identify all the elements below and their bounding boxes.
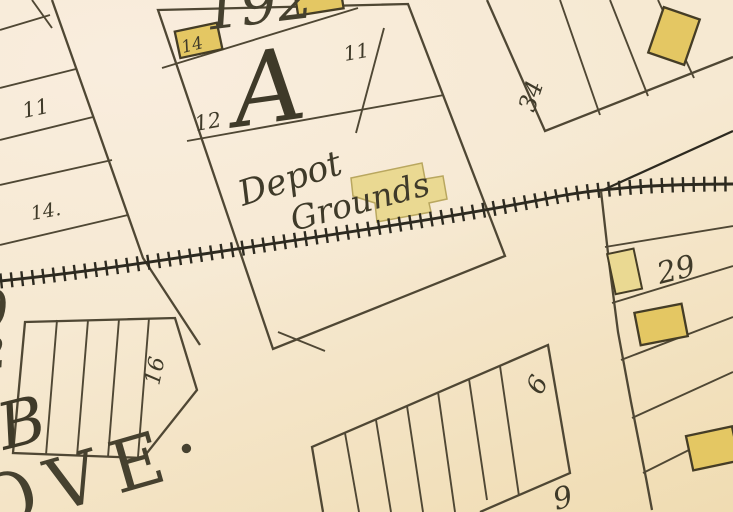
lot-number: 12 <box>193 108 223 136</box>
block-outline <box>312 345 570 512</box>
plat-map-drawing: 11 14. 192 14 12 11 A Depot Grounds <box>0 0 733 512</box>
lot-divider-line <box>0 215 128 245</box>
top-right-lot-block: 34 <box>487 0 733 131</box>
lot-number: 11 <box>20 94 51 123</box>
lot-divider-line <box>407 406 423 512</box>
lot-divider-line <box>469 379 487 500</box>
lot-number: 29 <box>652 249 698 292</box>
lot-divider-line <box>610 0 648 96</box>
clipped-edge-numerals: 9 2 <box>0 280 12 380</box>
lot-number: 14. <box>29 198 63 225</box>
building-footprint <box>648 7 700 65</box>
bottom-lot-block: 6 9 <box>312 345 576 512</box>
lot-divider-line <box>32 0 52 28</box>
lot-divider-line <box>605 226 733 247</box>
lot-divider-line <box>187 95 444 141</box>
lot-number: 6 <box>521 371 555 400</box>
lot-divider-line <box>560 0 600 115</box>
lot-number: 34 <box>513 77 549 115</box>
lot-divider-line <box>0 69 76 88</box>
lot-divider-line <box>500 366 519 496</box>
street-edge-line <box>52 0 200 345</box>
lot-divider-line <box>0 160 112 185</box>
lot-divider-line <box>345 433 359 512</box>
lot-number: 11 <box>342 38 371 66</box>
lot-divider-line <box>376 420 391 512</box>
building-footprint <box>634 304 687 346</box>
railroad-spur-line <box>601 131 733 191</box>
street-corner-line <box>278 332 325 351</box>
lot-divider-line <box>0 117 93 140</box>
right-lot-strip: 29 <box>601 191 733 510</box>
lot-number: 16 <box>140 355 170 388</box>
block-a-depot-grounds: 192 14 12 11 A Depot Grounds <box>158 0 505 351</box>
lot-divider-line <box>632 372 733 418</box>
lot-divider-line <box>0 15 50 30</box>
lot-divider-line <box>438 392 455 512</box>
atlas-map-canvas[interactable]: 11 14. 192 14 12 11 A Depot Grounds <box>0 0 733 512</box>
building-footprint <box>686 426 733 470</box>
lot-number: 9 <box>549 479 576 512</box>
